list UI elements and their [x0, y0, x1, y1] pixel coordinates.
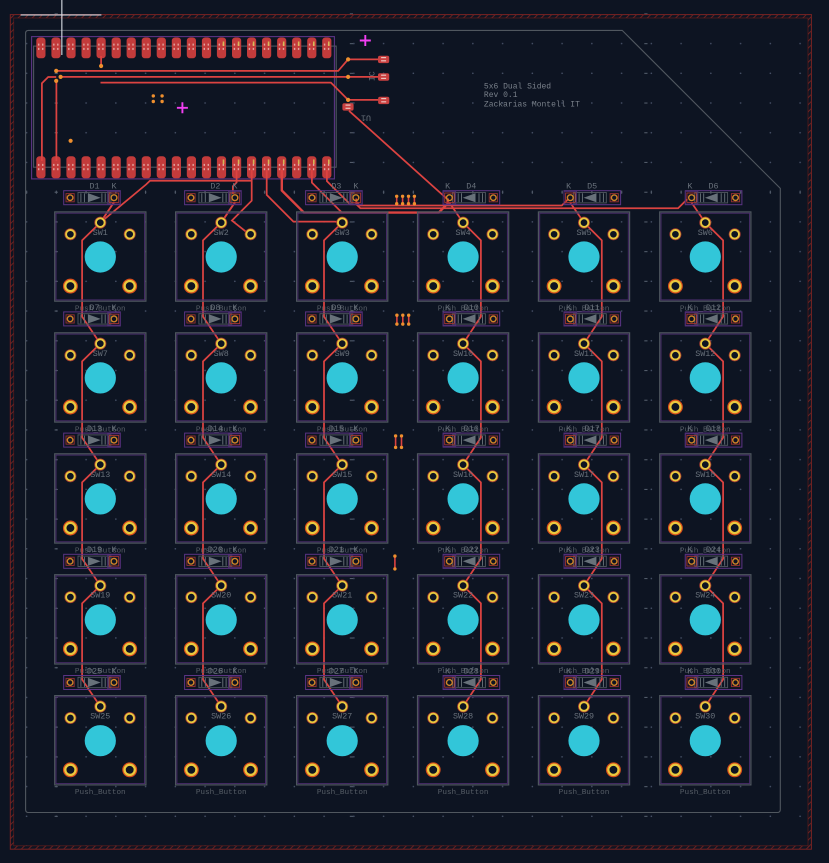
svg-text:D19: D19	[87, 545, 102, 555]
svg-text:Rev 0.1: Rev 0.1	[484, 91, 518, 100]
svg-text:D2: D2	[210, 182, 220, 192]
svg-text:SW20: SW20	[211, 591, 231, 601]
svg-text:SW27: SW27	[332, 712, 352, 722]
svg-text:SW4: SW4	[456, 228, 471, 238]
svg-text:SW30: SW30	[695, 712, 715, 722]
svg-text:D18: D18	[706, 424, 721, 434]
svg-text:SW26: SW26	[211, 712, 231, 722]
svg-text:Push_Button: Push_Button	[317, 789, 368, 797]
svg-text:Push_Button: Push_Button	[317, 305, 368, 313]
svg-text:D13: D13	[87, 424, 102, 434]
svg-text:Push_Button: Push_Button	[75, 305, 126, 313]
svg-text:D22: D22	[464, 545, 479, 555]
svg-text:D14: D14	[208, 424, 223, 434]
svg-text:D3: D3	[331, 182, 341, 192]
svg-text:Push_Button: Push_Button	[680, 789, 731, 797]
svg-text:D16: D16	[464, 424, 479, 434]
svg-text:D25: D25	[87, 666, 102, 676]
svg-text:SW9: SW9	[335, 349, 350, 359]
svg-text:SW29: SW29	[574, 712, 594, 722]
svg-text:SW13: SW13	[90, 470, 110, 480]
svg-text:D4: D4	[466, 182, 476, 192]
svg-text:D24: D24	[706, 545, 721, 555]
svg-text:D1: D1	[89, 182, 99, 192]
svg-text:SW10: SW10	[453, 349, 473, 359]
svg-text:D11: D11	[585, 303, 600, 313]
svg-text:D21: D21	[329, 545, 344, 555]
svg-text:SW19: SW19	[90, 591, 110, 601]
svg-text:Push_Button: Push_Button	[559, 789, 610, 797]
svg-text:D5: D5	[587, 182, 597, 192]
svg-text:D27: D27	[329, 666, 344, 676]
svg-text:SW5: SW5	[576, 228, 591, 238]
svg-text:SW11: SW11	[574, 349, 594, 359]
svg-text:D20: D20	[208, 545, 223, 555]
svg-text:Push_Button: Push_Button	[196, 305, 247, 313]
svg-text:Push_Button: Push_Button	[196, 789, 247, 797]
svg-text:SW8: SW8	[214, 349, 229, 359]
svg-text:D23: D23	[585, 545, 600, 555]
svg-text:SW3: SW3	[335, 228, 350, 238]
svg-text:SW24: SW24	[695, 591, 715, 601]
svg-text:D30: D30	[706, 666, 721, 676]
svg-text:SW14: SW14	[211, 470, 231, 480]
svg-text:SW7: SW7	[93, 349, 108, 359]
svg-text:SW28: SW28	[453, 712, 473, 722]
svg-text:D10: D10	[464, 303, 479, 313]
svg-text:D28: D28	[464, 666, 479, 676]
svg-text:Zackarias Montell IT: Zackarias Montell IT	[484, 100, 580, 109]
svg-text:U1: U1	[361, 113, 371, 123]
svg-text:SW15: SW15	[332, 470, 352, 480]
svg-text:D12: D12	[706, 303, 721, 313]
svg-text:SW25: SW25	[90, 712, 110, 722]
svg-text:SW17: SW17	[574, 470, 594, 480]
svg-text:SW21: SW21	[332, 591, 352, 601]
svg-text:D29: D29	[585, 666, 600, 676]
svg-text:Push_Button: Push_Button	[438, 789, 489, 797]
svg-text:SW22: SW22	[453, 591, 473, 601]
svg-text:D7: D7	[89, 303, 99, 313]
svg-text:D8: D8	[210, 303, 220, 313]
svg-text:SW1: SW1	[93, 228, 108, 238]
svg-text:D9: D9	[331, 303, 341, 313]
svg-text:Push_Button: Push_Button	[75, 789, 126, 797]
svg-text:SW12: SW12	[695, 349, 715, 359]
svg-text:D6: D6	[708, 182, 718, 192]
svg-text:SW16: SW16	[453, 470, 473, 480]
svg-text:SW2: SW2	[214, 228, 229, 238]
svg-text:SW23: SW23	[574, 591, 594, 601]
svg-text:D15: D15	[329, 424, 344, 434]
svg-text:SW18: SW18	[695, 470, 715, 480]
svg-text:D17: D17	[585, 424, 600, 434]
svg-text:SW6: SW6	[698, 228, 713, 238]
svg-text:D26: D26	[208, 666, 223, 676]
